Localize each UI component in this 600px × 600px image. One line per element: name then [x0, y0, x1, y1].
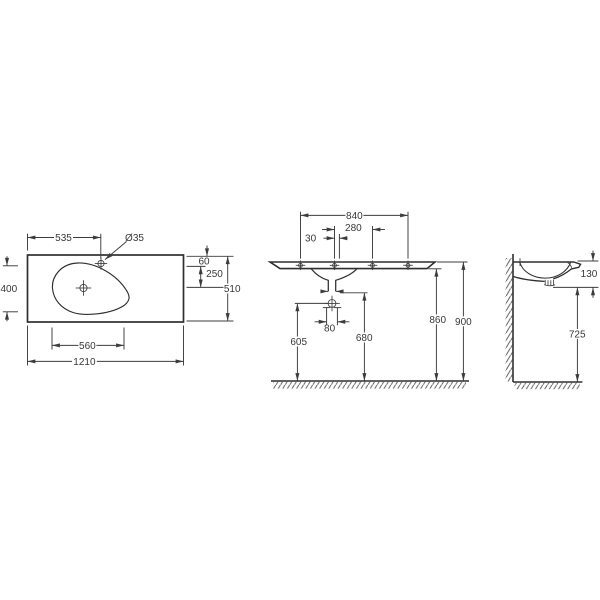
dim-label: 1210: [73, 357, 96, 368]
countertop-outline-plan: [28, 255, 184, 322]
dim-label: 860: [429, 315, 446, 326]
dim-label-510: 510: [224, 284, 241, 295]
front-elevation-view: 80 840 280 30: [270, 211, 473, 389]
bowl-interior-curve: [520, 262, 571, 278]
side-section-view: 130 725: [506, 251, 599, 390]
dim-label: 80: [324, 324, 336, 335]
dim-label: 840: [346, 211, 363, 222]
basin-bowl-outline-plan: [52, 263, 129, 314]
dimension-trap-width: 80: [315, 308, 350, 335]
drain-center-mark: [76, 280, 92, 296]
washbasin-technical-drawing: 535 Ø35 400 560 1210: [0, 0, 600, 600]
floor-hatch: [273, 382, 466, 389]
dim-label: 130: [581, 269, 598, 280]
wall-hatch: [506, 258, 513, 382]
dim-label: 560: [79, 341, 96, 352]
dim-label: 280: [345, 223, 362, 234]
drawing-canvas: 535 Ø35 400 560 1210: [0, 0, 600, 600]
bowl-underside-left: [311, 269, 328, 292]
basin-underside-right: [553, 269, 571, 279]
dim-label: Ø35: [125, 233, 144, 244]
bowl-underside-right: [336, 269, 357, 292]
floor-front: [271, 381, 469, 389]
dimension-floor-to-trap: 605: [289, 303, 327, 381]
drain-ribs-section: [544, 280, 555, 286]
dim-label: 605: [290, 337, 307, 348]
plan-view: 535 Ø35 400 560 1210: [0, 233, 241, 368]
dimension-overall-width: 1210: [28, 326, 184, 368]
dimension-floor-to-drain: 680: [340, 293, 374, 381]
dim-label: 535: [55, 233, 72, 244]
dimension-fixing-inner: 280: [322, 223, 385, 259]
dimension-fixing-span: 840: [301, 211, 409, 259]
dimension-floor-to-basin: 725: [568, 287, 587, 382]
dim-label: 400: [0, 284, 17, 295]
basin-front-edge: [572, 262, 581, 269]
leader-line: [105, 242, 127, 260]
dim-label: 680: [356, 333, 373, 344]
dimension-bowl-depth: 400: [0, 256, 18, 321]
floor-hatch: [515, 383, 580, 389]
dimension-right-stack: 60 250 510: [187, 246, 241, 322]
dim-label-60: 60: [198, 256, 210, 267]
dim-label-250: 250: [206, 269, 223, 280]
dimension-axis-offset: 30: [305, 234, 348, 259]
floor-side: [513, 382, 582, 389]
dim-label: 725: [569, 330, 586, 341]
dim-label: 900: [455, 317, 472, 328]
dim-label: 30: [305, 234, 317, 245]
dimension-bowl-width: 560: [52, 328, 124, 352]
dimension-floor-to-underside: 860: [428, 269, 447, 381]
